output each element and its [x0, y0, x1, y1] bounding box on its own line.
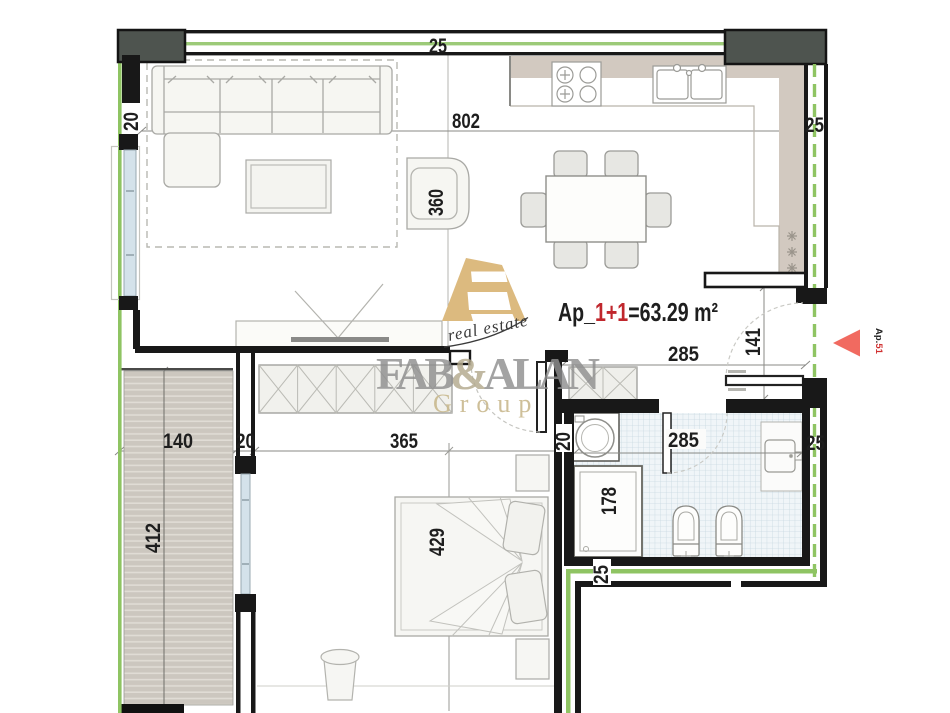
svg-text:25: 25	[429, 35, 447, 58]
svg-text:20: 20	[236, 429, 255, 453]
svg-text:25: 25	[805, 113, 824, 137]
svg-text:140: 140	[163, 429, 193, 453]
svg-text:Group: Group	[433, 389, 539, 418]
svg-text:178: 178	[597, 487, 621, 515]
svg-text:365: 365	[390, 429, 418, 453]
svg-text:Ap.51: Ap.51	[873, 328, 884, 355]
svg-text:285: 285	[668, 342, 699, 366]
svg-text:412: 412	[141, 523, 165, 553]
svg-text:141: 141	[741, 328, 765, 356]
svg-text:429: 429	[425, 528, 449, 556]
svg-text:Ap_1+1=63.29 m²: Ap_1+1=63.29 m²	[558, 297, 718, 327]
svg-text:20: 20	[119, 112, 143, 131]
svg-text:25: 25	[589, 565, 613, 584]
svg-text:285: 285	[668, 428, 699, 452]
svg-text:360: 360	[424, 189, 448, 216]
svg-text:20: 20	[551, 432, 575, 451]
svg-text:802: 802	[452, 109, 480, 133]
svg-text:25: 25	[806, 431, 825, 455]
